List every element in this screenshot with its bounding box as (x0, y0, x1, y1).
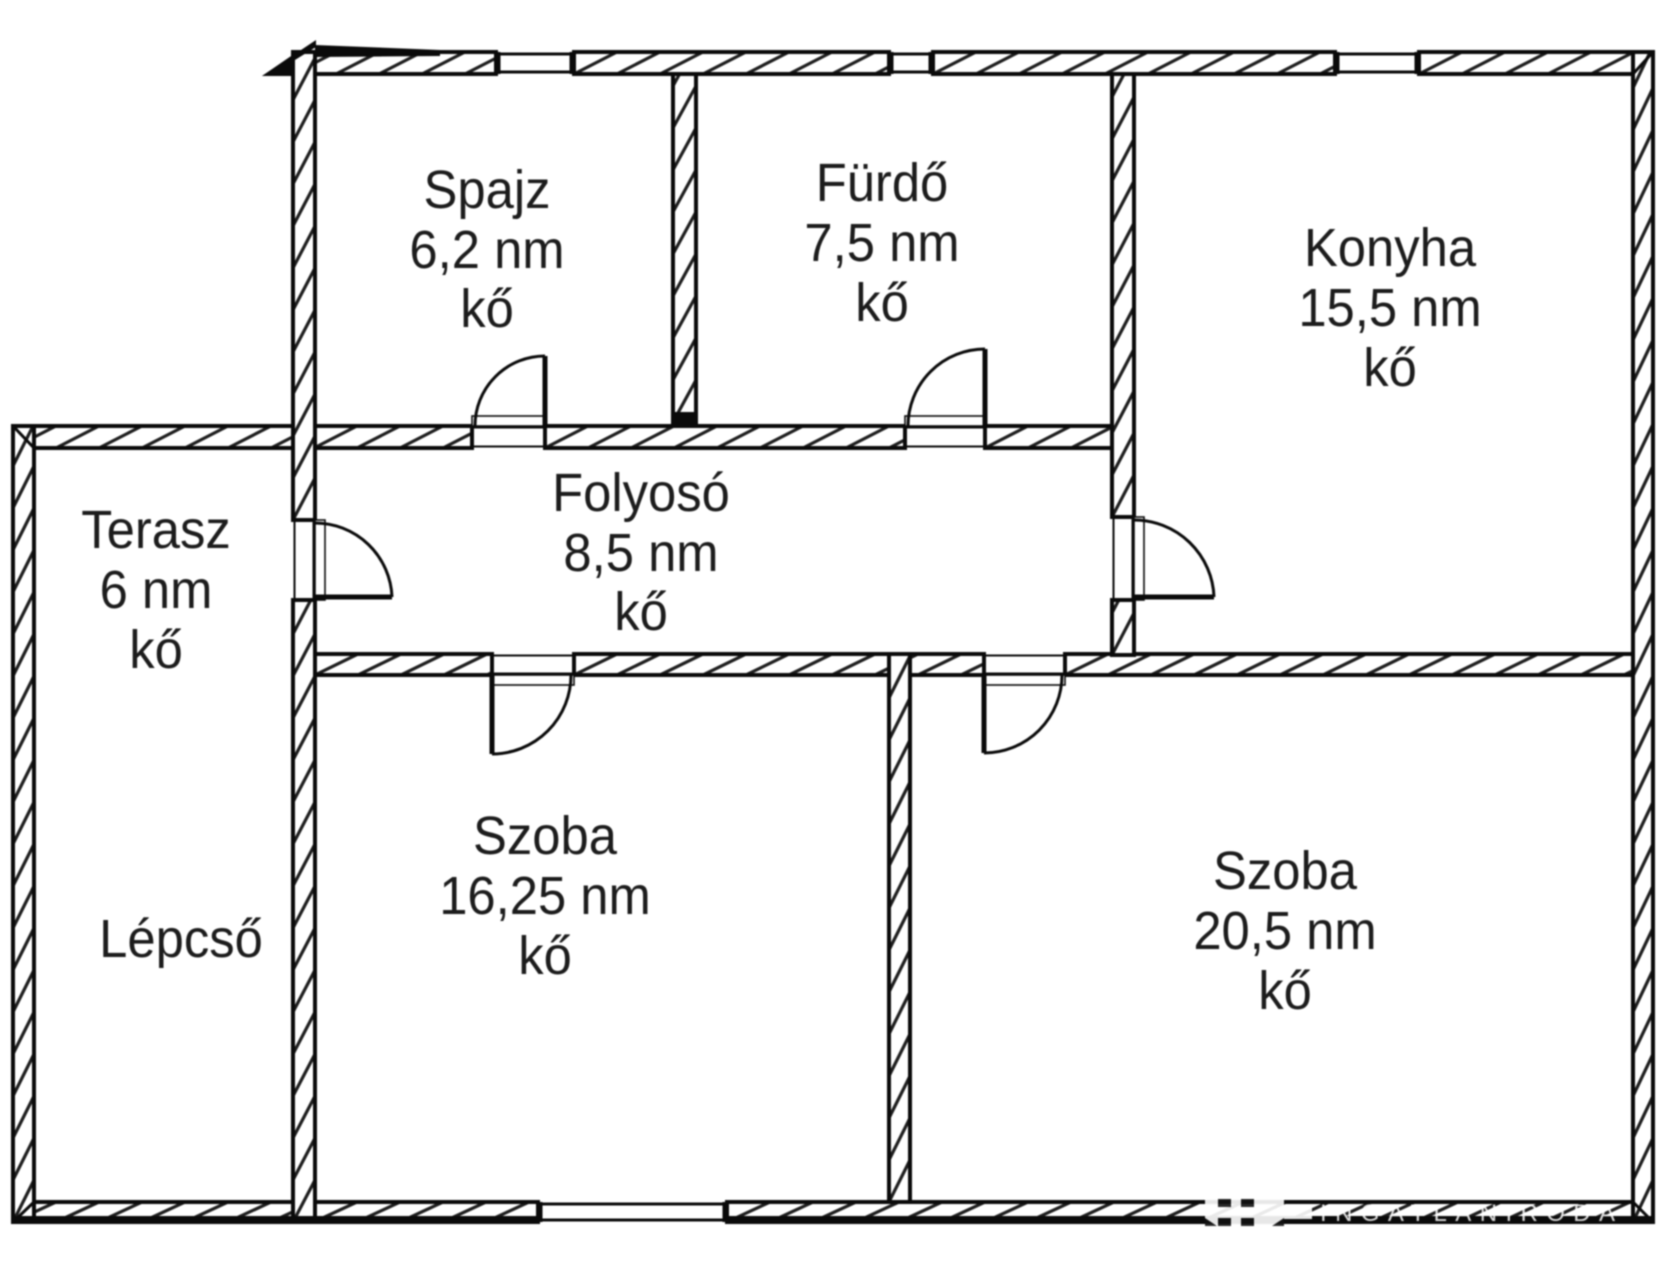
svg-text:Folyosó: Folyosó (552, 464, 730, 524)
svg-text:Szoba: Szoba (1213, 842, 1358, 902)
svg-text:Fürdő: Fürdő (816, 154, 949, 214)
svg-text:7,5 nm: 7,5 nm (804, 214, 959, 274)
svg-text:kő: kő (614, 583, 668, 643)
svg-text:16,25 nm: 16,25 nm (439, 867, 651, 927)
svg-text:kő: kő (1363, 339, 1417, 399)
svg-text:20,5 nm: 20,5 nm (1193, 902, 1376, 962)
svg-text:kő: kő (855, 274, 909, 334)
svg-text:Lépcső: Lépcső (99, 910, 263, 970)
svg-text:8,5 nm: 8,5 nm (563, 524, 718, 584)
svg-text:INGATLANIRODA: INGATLANIRODA (1320, 1200, 1623, 1227)
svg-text:6 nm: 6 nm (100, 561, 213, 621)
svg-text:Konyha: Konyha (1304, 219, 1477, 279)
svg-text:Terasz: Terasz (81, 501, 230, 561)
svg-text:kő: kő (518, 927, 572, 987)
svg-text:kő: kő (460, 280, 514, 340)
svg-text:kő: kő (129, 621, 183, 681)
svg-text:kő: kő (1258, 962, 1312, 1022)
svg-text:Spajz: Spajz (424, 161, 551, 221)
svg-text:6,2 nm: 6,2 nm (409, 221, 564, 281)
svg-text:15,5 nm: 15,5 nm (1298, 279, 1481, 339)
svg-text:Szoba: Szoba (473, 807, 618, 867)
